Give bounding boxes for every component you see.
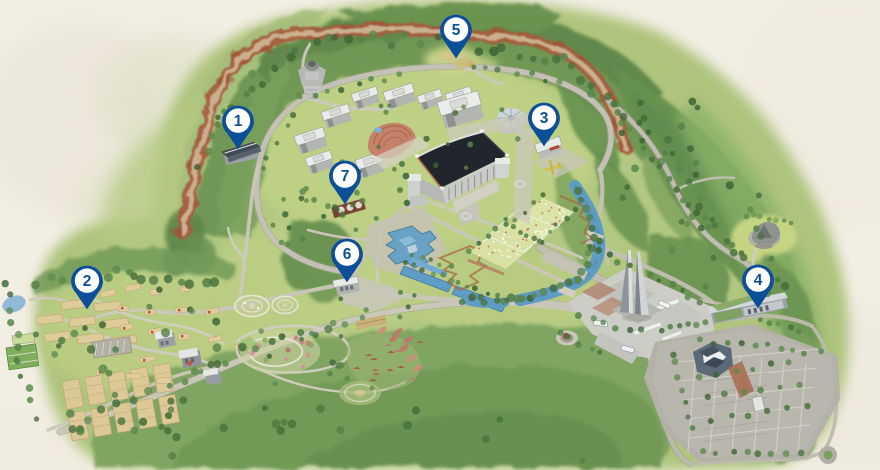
svg-text:4: 4 (754, 272, 763, 289)
svg-text:1: 1 (234, 113, 243, 130)
svg-text:2: 2 (83, 273, 92, 290)
svg-text:7: 7 (341, 168, 350, 185)
svg-text:5: 5 (452, 22, 461, 39)
svg-text:3: 3 (540, 110, 549, 127)
svg-text:6: 6 (343, 246, 352, 263)
